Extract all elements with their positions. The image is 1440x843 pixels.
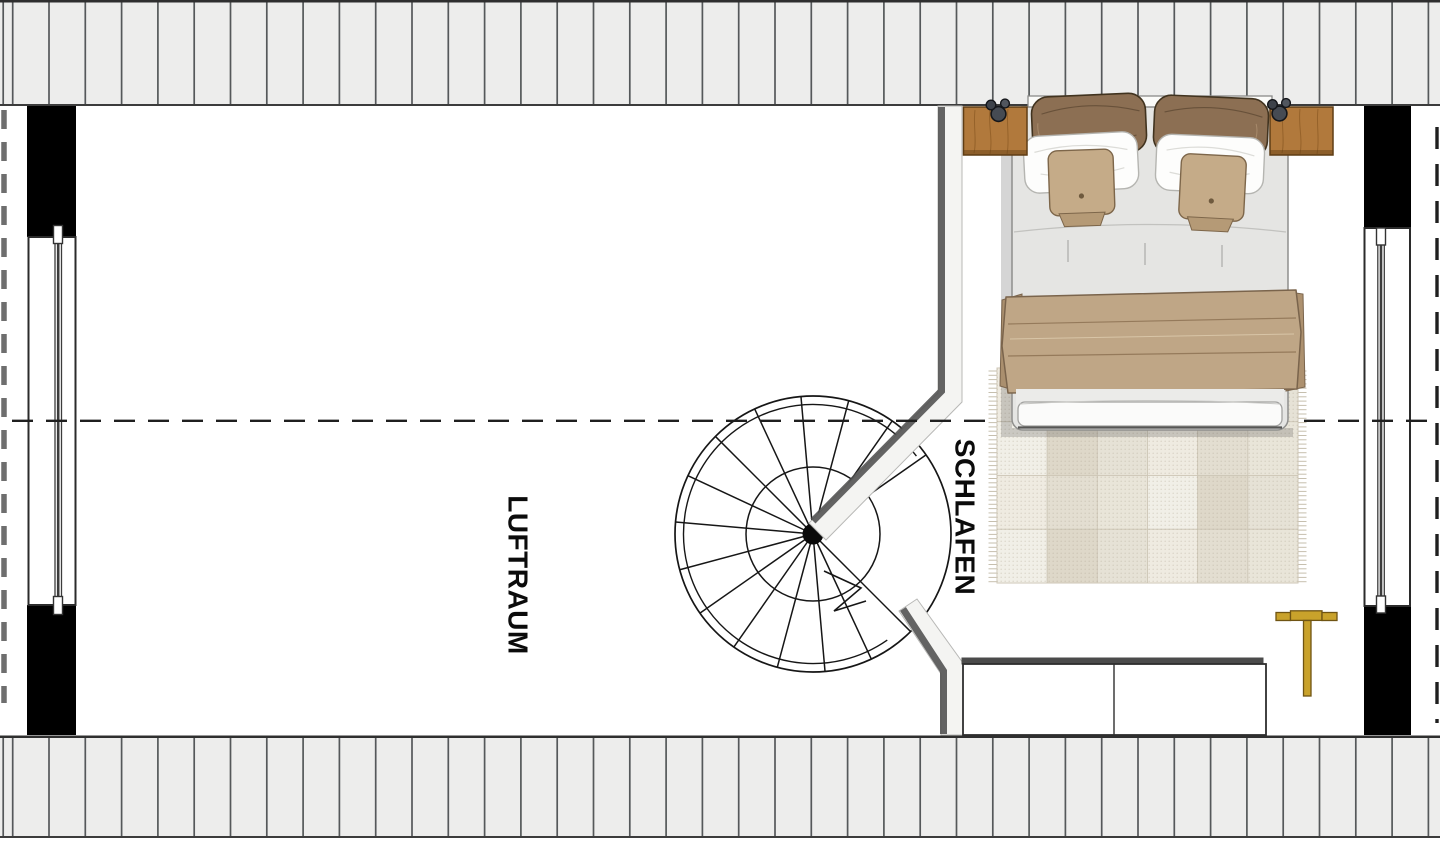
bed-foot-fold bbox=[1016, 389, 1284, 428]
room-label-schlafen: SCHLAFEN bbox=[950, 439, 981, 595]
left-window-jamb-bottom bbox=[54, 597, 63, 615]
stair-tread-line bbox=[700, 534, 813, 613]
floor-plan-canvas: LUFTRAUM SCHLAFEN bbox=[0, 0, 1440, 843]
stair-tread-line bbox=[813, 534, 911, 632]
stair-wall-upper-shadow bbox=[813, 107, 942, 521]
left-window-jamb-top bbox=[54, 226, 63, 244]
stair-tread-line bbox=[715, 436, 813, 534]
right-window-frame bbox=[1365, 228, 1411, 606]
stair-tread-line bbox=[734, 534, 813, 647]
room-label-luftraum: LUFTRAUM bbox=[503, 495, 534, 655]
nightstand-right bbox=[1268, 99, 1333, 155]
stair-handrail-arc bbox=[684, 405, 917, 664]
left-wall-lower-segment bbox=[27, 605, 76, 735]
left-wall-upper-segment bbox=[27, 106, 76, 237]
right-wall-upper-segment bbox=[1364, 106, 1411, 228]
nightstand-left bbox=[964, 99, 1028, 155]
valet-stand bbox=[1276, 611, 1337, 696]
stair-wall-upper bbox=[809, 106, 962, 540]
right-window-jamb-top bbox=[1377, 228, 1386, 245]
wardrobe bbox=[962, 658, 1267, 736]
stair-wall-lower bbox=[899, 599, 963, 735]
right-wall-lower-segment bbox=[1364, 606, 1411, 735]
blanket-tan bbox=[1000, 290, 1305, 393]
floor-plan: LUFTRAUM SCHLAFEN bbox=[0, 0, 1440, 843]
roof-hatch-top bbox=[0, 0, 1440, 106]
roof-panel-fill bbox=[0, 0, 1440, 106]
double-bed bbox=[1000, 93, 1305, 437]
roof-panel-fill bbox=[0, 736, 1440, 839]
roof-hatch-bottom bbox=[0, 736, 1440, 839]
right-window-jamb-bottom bbox=[1377, 596, 1386, 613]
stair-break-line bbox=[824, 571, 866, 611]
